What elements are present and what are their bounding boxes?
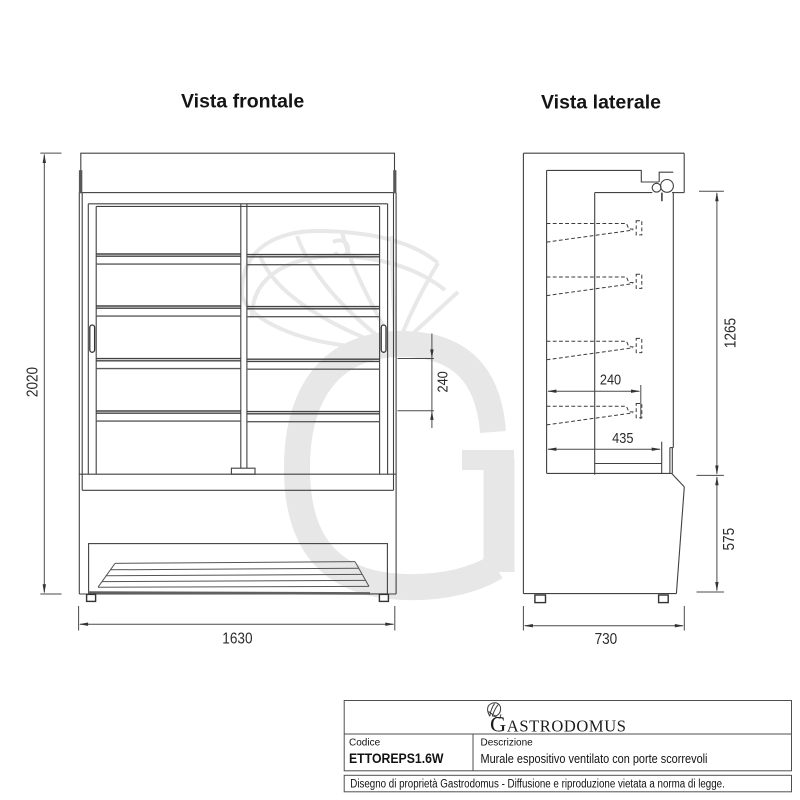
svg-text:435: 435 (612, 429, 633, 446)
svg-text:730: 730 (595, 631, 618, 648)
svg-text:Vista laterale: Vista laterale (541, 92, 661, 114)
svg-text:Descrizione: Descrizione (481, 738, 534, 749)
svg-text:Vista frontale: Vista frontale (181, 91, 304, 113)
svg-text:1630: 1630 (222, 630, 252, 647)
svg-text:1265: 1265 (722, 318, 739, 348)
svg-text:240: 240 (433, 371, 450, 392)
svg-text:ASTRODOMUS: ASTRODOMUS (507, 717, 627, 736)
svg-text:G: G (490, 712, 506, 737)
svg-text:240: 240 (600, 371, 621, 388)
svg-text:Murale espositivo ventilato co: Murale espositivo ventilato con porte sc… (481, 752, 708, 766)
svg-text:2020: 2020 (25, 367, 42, 397)
svg-text:ETTOREPS1.6W: ETTOREPS1.6W (349, 751, 444, 766)
svg-text:575: 575 (721, 528, 738, 551)
svg-text:Codice: Codice (349, 738, 381, 749)
svg-text:Disegno di proprietà Gastrodom: Disegno di proprietà Gastrodomus - Diffu… (350, 778, 725, 790)
